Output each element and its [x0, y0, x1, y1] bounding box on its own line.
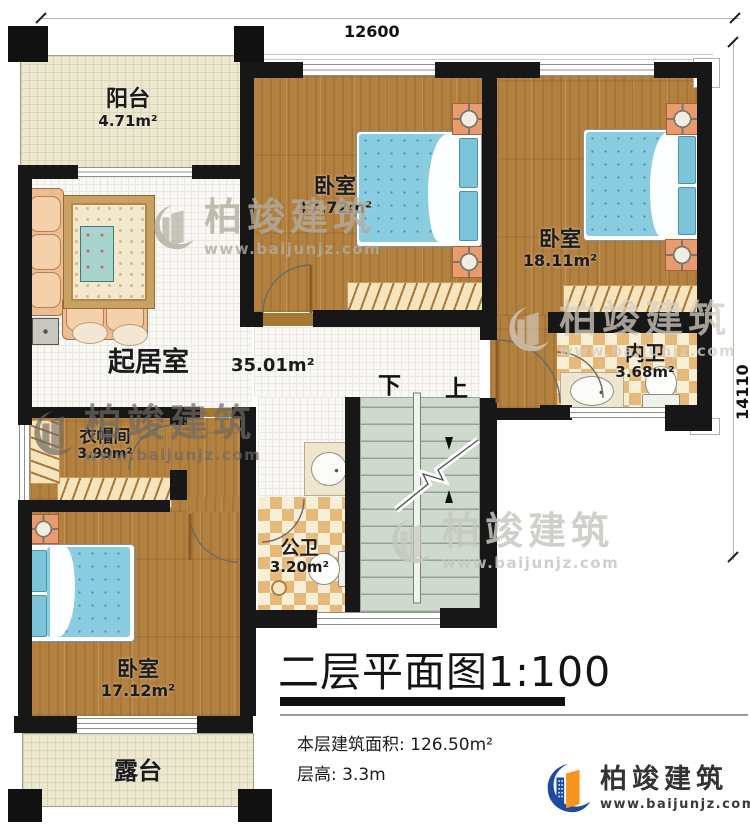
wall-segment — [170, 407, 187, 425]
top-dimension-line — [40, 18, 740, 19]
room-label-public-bath: 公卫 3.20m² — [252, 538, 347, 576]
top-dimension-text: 12600 — [344, 22, 400, 41]
wall-segment — [313, 310, 490, 327]
wall-segment — [18, 407, 170, 418]
room-name: 卧室 — [500, 228, 620, 252]
room-name: 衣帽间 — [50, 428, 160, 447]
room-area: 35.01m² — [231, 356, 315, 376]
exterior-sill-line — [243, 54, 713, 55]
plan-title: 二层平面图1:100 — [278, 638, 611, 698]
coffee-table — [80, 226, 114, 282]
room-name: 内卫 — [595, 342, 695, 364]
window — [570, 407, 665, 418]
sliding-door — [77, 718, 197, 729]
window — [303, 64, 435, 76]
hall-sink — [311, 452, 347, 486]
staircase — [360, 397, 480, 612]
room-area: 17.12m² — [78, 682, 198, 700]
room-label-ensuite: 内卫 3.68m² — [595, 342, 695, 381]
room-area: 4.71m² — [68, 113, 188, 130]
bed-pillow — [459, 138, 478, 188]
sofa-cushion — [29, 234, 61, 270]
room-name: 起居室 — [108, 348, 189, 378]
brand-logo: 柏竣建筑 www.baijunjz.com — [543, 762, 750, 816]
wall-segment — [18, 512, 32, 733]
wall-segment — [240, 312, 263, 327]
ottoman — [112, 324, 148, 346]
brand-website: www.baijunjz.com — [600, 797, 750, 812]
title-rule-thick — [280, 697, 565, 706]
room-name: 露台 — [88, 758, 188, 785]
floor-plan-canvas: 12600 14110 — [0, 0, 750, 827]
wall-segment — [18, 165, 78, 179]
wall-segment — [440, 608, 497, 628]
room-area: 3.68m² — [595, 364, 695, 381]
room-label-cloakroom: 衣帽间 3.99m² — [50, 428, 160, 463]
pillar — [238, 789, 272, 822]
ottoman — [72, 322, 108, 344]
room-area: 3.99m² — [50, 447, 160, 463]
floor-area-text: 本层建筑面积: 126.50m² — [297, 730, 493, 755]
stairs-up-label: 上 — [445, 369, 468, 403]
wall-segment — [548, 312, 712, 333]
nightstand — [452, 246, 486, 278]
room-name: 卧室 — [275, 175, 395, 199]
vestibule-floor — [490, 316, 557, 408]
wall-segment — [665, 405, 712, 431]
room-area: 17.72m² — [275, 199, 395, 217]
room-area: 3.20m² — [252, 559, 347, 576]
nightstand — [28, 514, 59, 544]
right-dimension-line — [733, 42, 734, 560]
pillar — [8, 789, 42, 822]
side-table — [32, 318, 59, 345]
nightstand — [666, 103, 699, 135]
door-opening — [200, 408, 232, 417]
right-dimension-text: 14110 — [733, 364, 750, 420]
wall-segment — [18, 500, 170, 512]
brand-text: 柏竣建筑 www.baijunjz.com — [600, 766, 750, 812]
exterior-sill-line — [243, 59, 713, 60]
room-label-balcony: 阳台 4.71m² — [68, 88, 188, 129]
wall-segment — [18, 165, 32, 407]
brand-logo-icon — [543, 762, 593, 816]
sliding-door — [78, 167, 192, 177]
wall-segment — [240, 62, 254, 315]
wardrobe-hangers — [563, 285, 699, 315]
sofa-cushion — [29, 272, 61, 308]
wall-segment — [482, 62, 497, 315]
room-name: 卧室 — [78, 658, 198, 682]
floor-height-text: 层高: 3.3m — [297, 760, 386, 785]
wardrobe-hangers — [347, 282, 489, 313]
bed-pillow — [678, 187, 696, 235]
wall-segment — [540, 405, 572, 420]
pillar — [234, 26, 264, 62]
room-label-bedroom-top: 卧室 17.72m² — [275, 175, 395, 216]
door-opening — [263, 313, 313, 326]
nightstand — [452, 103, 486, 135]
window — [540, 64, 654, 76]
wall-segment — [170, 470, 187, 500]
room-label-bedroom-bottom: 卧室 17.12m² — [78, 658, 198, 699]
pillar — [8, 26, 48, 62]
window — [19, 425, 30, 500]
room-label-bedroom-right: 卧室 18.11m² — [500, 228, 620, 269]
room-label-terrace: 露台 — [88, 758, 188, 785]
floor-drain — [271, 580, 287, 596]
stairs-down-label: 下 — [378, 366, 401, 400]
brand-name: 柏竣建筑 — [600, 764, 728, 795]
room-label-living: 起居室 35.01m² — [108, 348, 315, 378]
wall-segment — [697, 62, 712, 412]
room-name: 公卫 — [252, 538, 347, 559]
bed-pillow — [678, 136, 696, 184]
title-rule-thin — [280, 714, 748, 716]
room-area: 18.11m² — [500, 252, 620, 270]
window — [317, 612, 440, 625]
bed-pillow — [459, 191, 478, 241]
wall-segment — [480, 315, 497, 340]
wall-segment — [345, 397, 360, 612]
nightstand — [665, 239, 699, 271]
wall-segment — [14, 716, 77, 733]
room-name: 阳台 — [68, 88, 188, 113]
sofa-cushion — [29, 196, 61, 232]
wall-segment — [480, 420, 497, 612]
wall-segment — [197, 716, 253, 733]
